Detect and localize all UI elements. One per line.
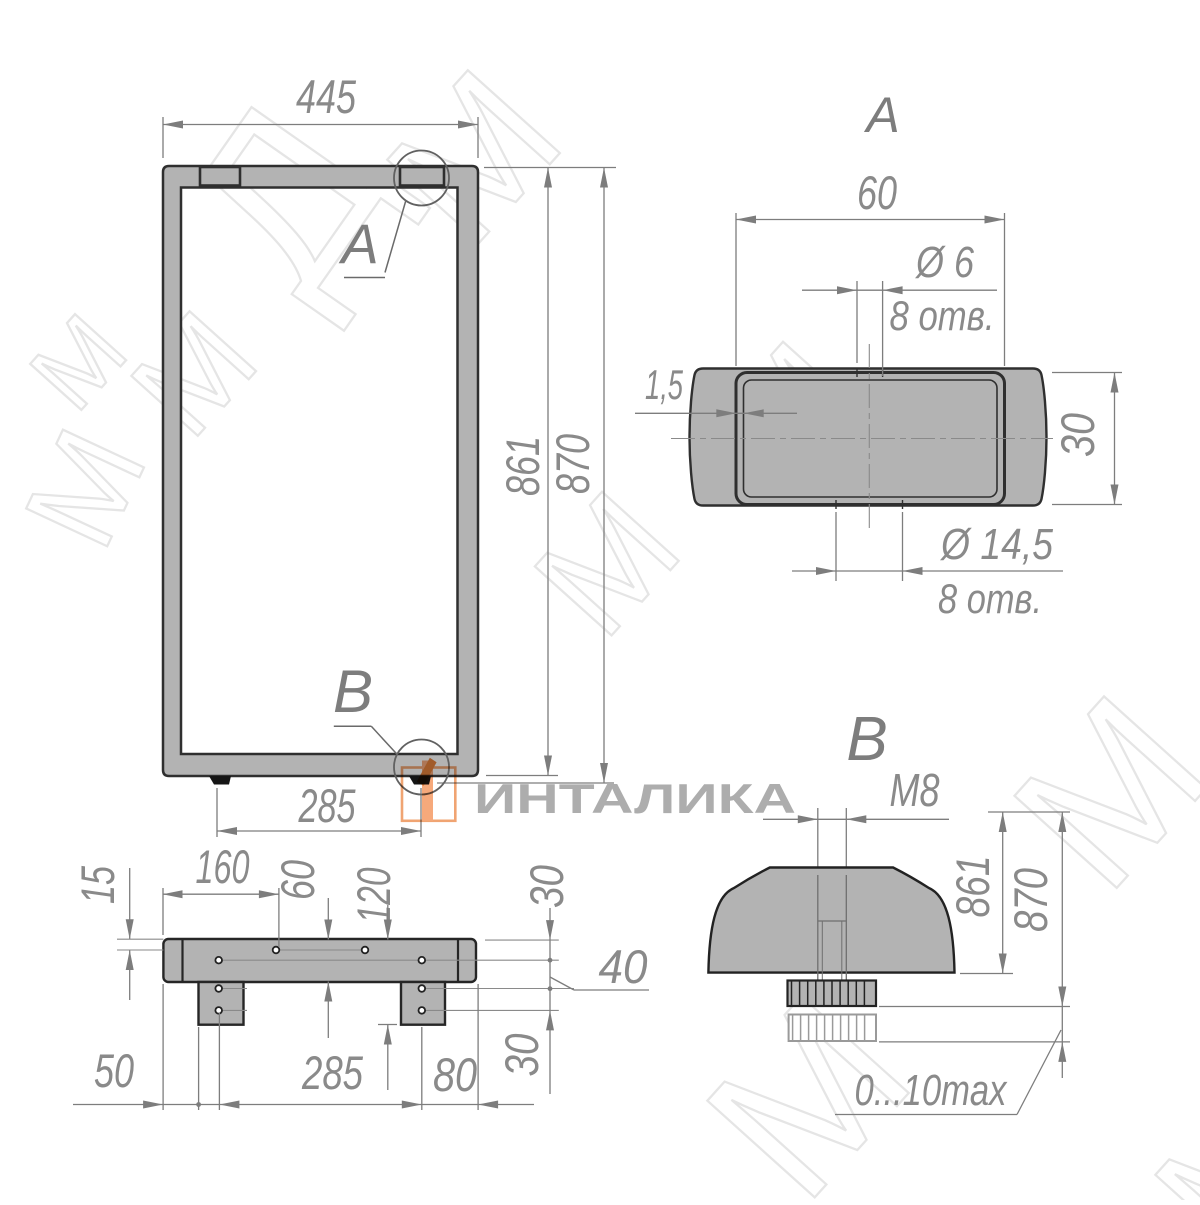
svg-text:8 отв.: 8 отв. (938, 575, 1042, 622)
svg-text:40: 40 (599, 940, 648, 993)
svg-text:870: 870 (1004, 868, 1057, 932)
svg-text:B: B (846, 705, 887, 774)
svg-text:30: 30 (520, 865, 573, 908)
svg-text:A: A (338, 212, 378, 275)
svg-text:Ø 6: Ø 6 (914, 238, 974, 287)
svg-text:861: 861 (496, 436, 549, 496)
svg-text:60: 60 (271, 860, 324, 900)
svg-text:A: A (863, 87, 899, 143)
svg-text:Ø 14,5: Ø 14,5 (939, 520, 1053, 569)
svg-text:80: 80 (433, 1048, 477, 1101)
svg-text:8 отв.: 8 отв. (890, 292, 995, 339)
svg-text:1,5: 1,5 (645, 361, 683, 408)
svg-text:445: 445 (296, 70, 357, 123)
svg-text:50: 50 (94, 1044, 134, 1097)
svg-text:861: 861 (946, 856, 999, 918)
svg-text:60: 60 (857, 166, 897, 219)
svg-text:0...10max: 0...10max (855, 1066, 1009, 1115)
svg-text:160: 160 (196, 840, 250, 893)
svg-text:15: 15 (71, 865, 124, 904)
svg-text:ИНТАЛИКА: ИНТАЛИКА (474, 775, 796, 822)
svg-text:M8: M8 (890, 764, 940, 816)
svg-text:285: 285 (301, 1046, 363, 1099)
svg-text:B: B (333, 658, 373, 725)
svg-text:30: 30 (495, 1034, 548, 1077)
svg-text:285: 285 (298, 779, 356, 832)
svg-text:30: 30 (1051, 413, 1104, 457)
svg-text:120: 120 (347, 868, 400, 924)
svg-text:870: 870 (546, 434, 599, 494)
